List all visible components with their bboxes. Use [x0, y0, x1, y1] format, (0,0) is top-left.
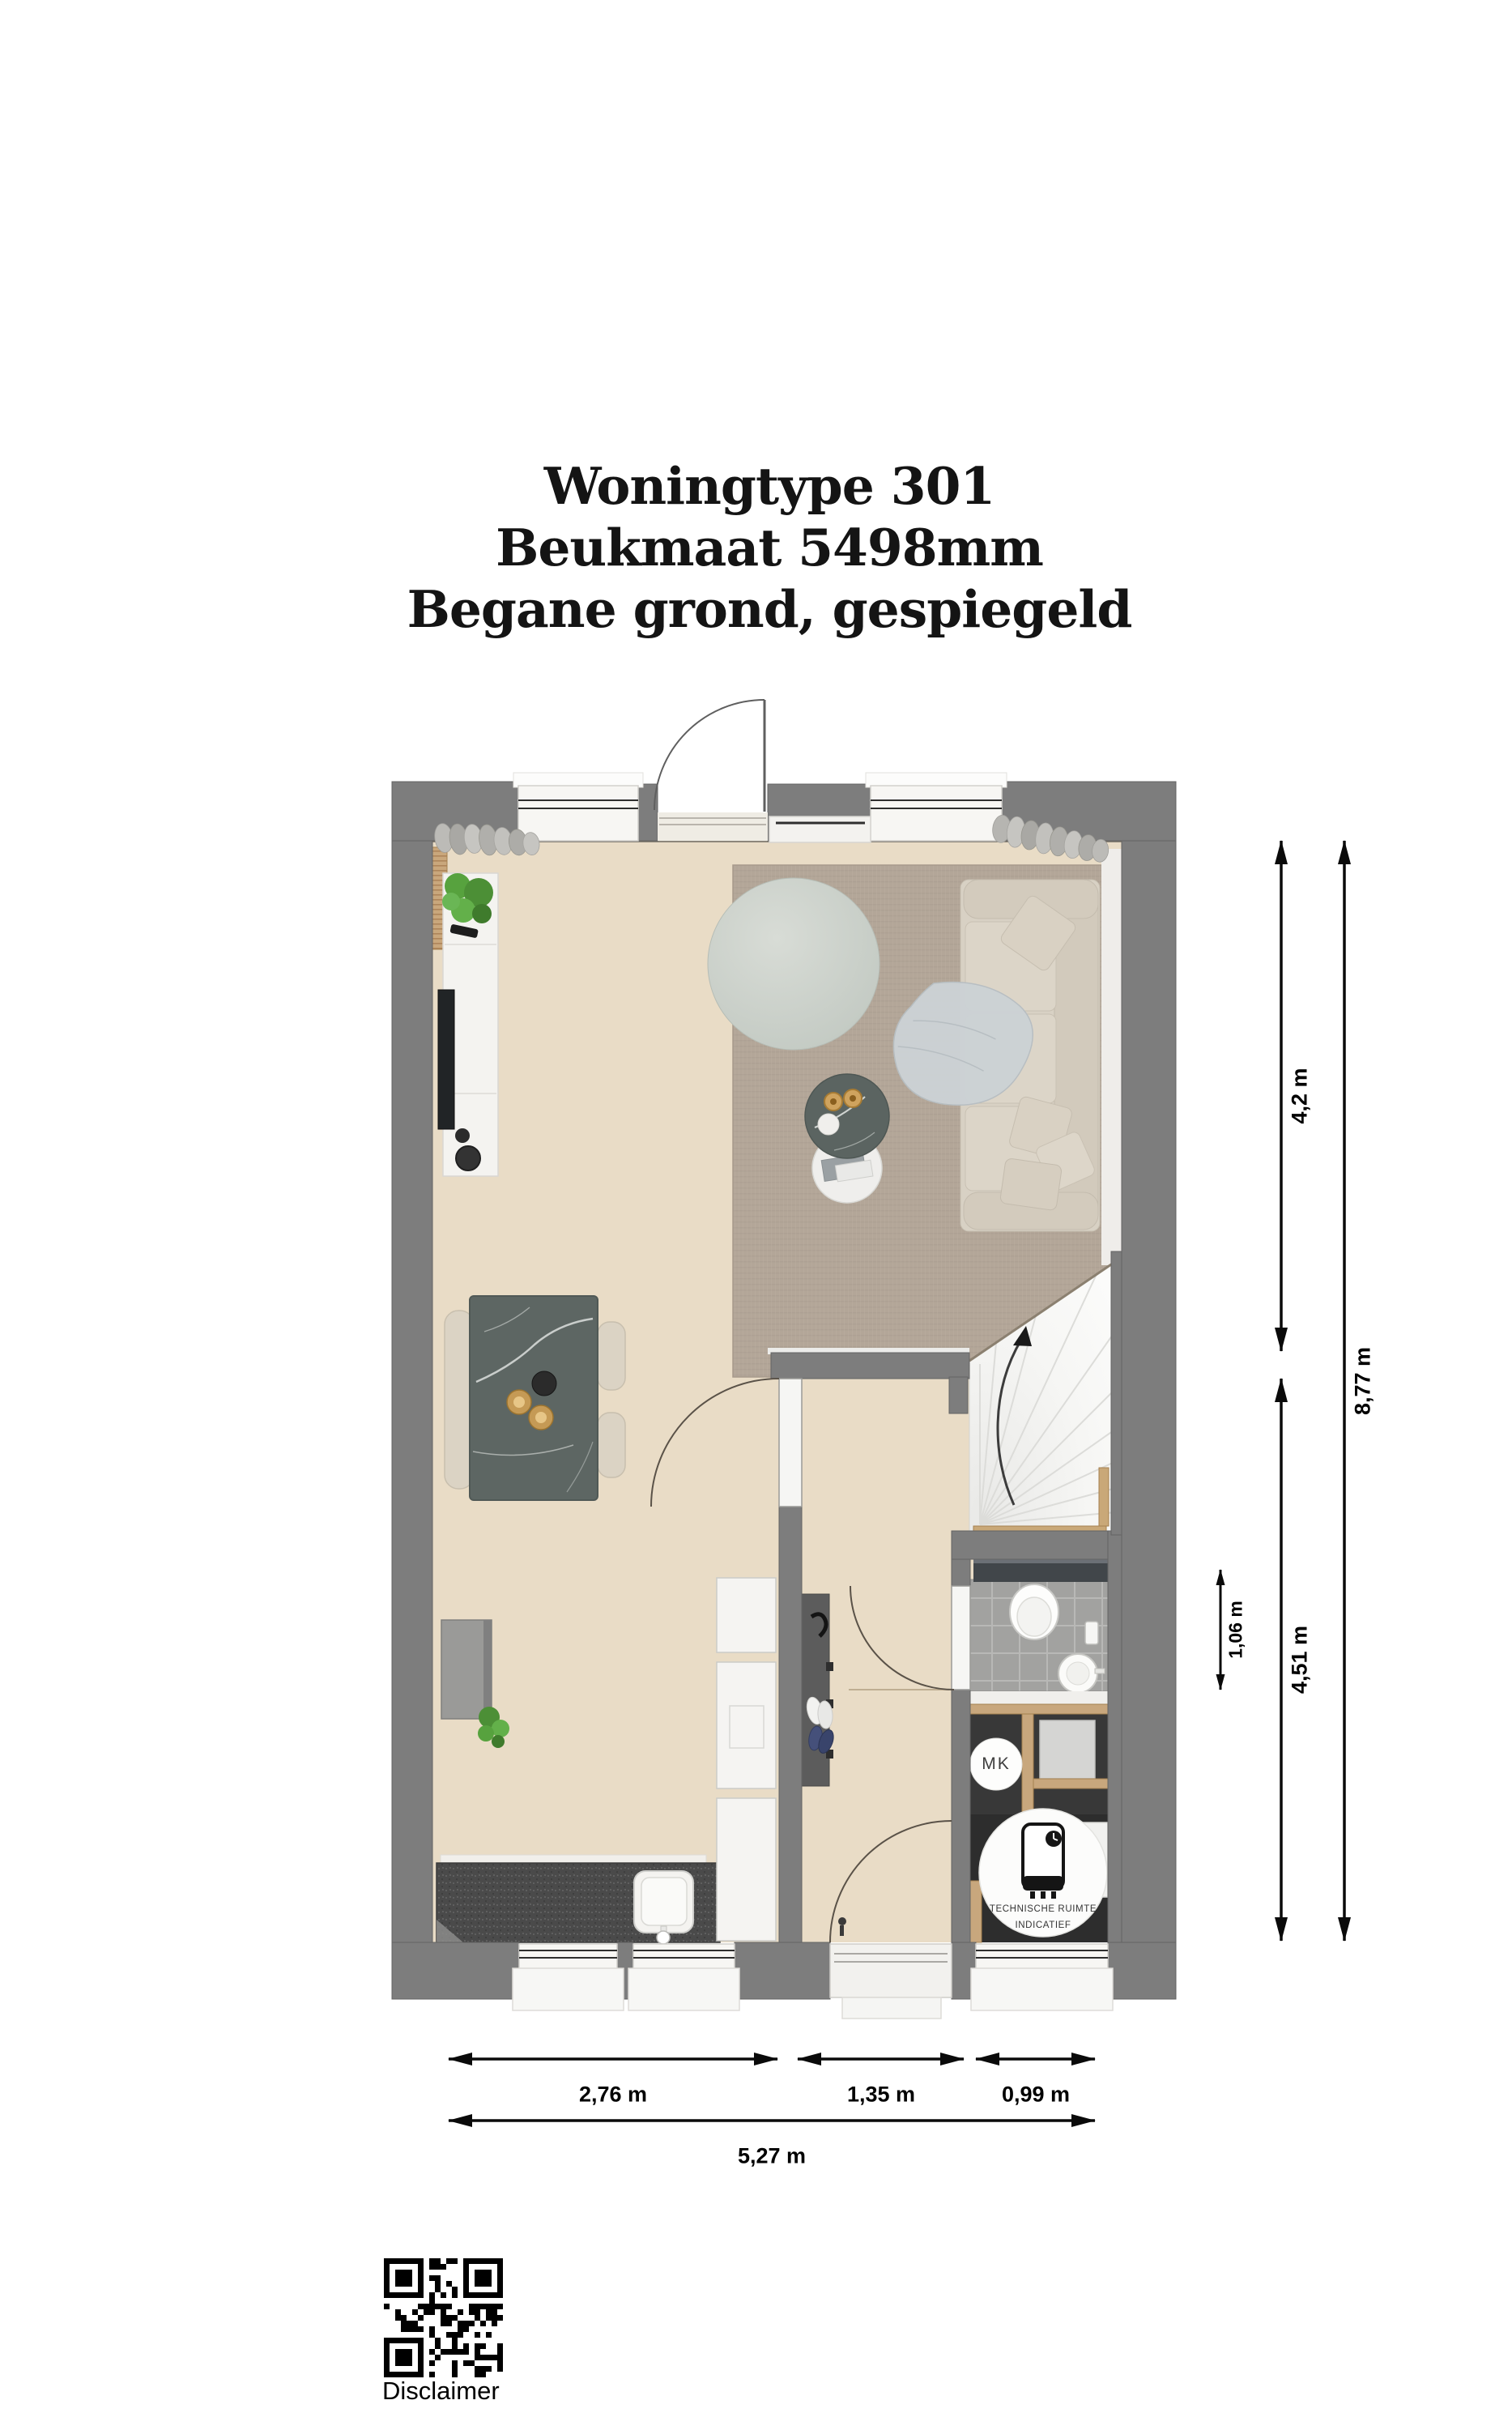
- window-top-right: [871, 786, 1002, 841]
- window-bottom-mid: [633, 1944, 735, 1968]
- dining-table: [470, 1296, 598, 1500]
- wall-toilet-left-lower: [952, 1690, 970, 1942]
- back-door-swing-arc: [654, 700, 765, 810]
- dim-label-living-depth: 4,2 m: [1288, 1068, 1313, 1123]
- tv-screen: [438, 990, 454, 1129]
- technical-room-label-2: INDICATIEF: [1015, 1921, 1071, 1930]
- wall-bottom-corner-right: [1108, 1942, 1176, 1999]
- wall-living-hall: [771, 1353, 969, 1379]
- dim-label-width-1: 2,76 m: [579, 2083, 647, 2108]
- floorplan-page: Woningtype 301 Beukmaat 5498mm Begane gr…: [0, 0, 1512, 2430]
- kitchen-tall-unit-3: [717, 1798, 776, 1941]
- meter-cupboard-label: MK: [982, 1754, 1011, 1774]
- low-cabinet-top: [769, 816, 871, 842]
- pouf: [708, 878, 880, 1050]
- wall-toilet-left-upper: [952, 1559, 970, 1586]
- floorplan-graphic: [0, 0, 1512, 2430]
- dim-label-width-2: 1,35 m: [847, 2083, 915, 2108]
- back-door-opening: [658, 812, 768, 841]
- toilet-door-leaf: [952, 1586, 970, 1690]
- wall-corner-post: [949, 1377, 968, 1413]
- technical-room-label-1: TECHNISCHE RUIMTE: [990, 1904, 1097, 1914]
- speaker-large: [456, 1146, 480, 1170]
- wall-stairs-toilet: [952, 1531, 1122, 1559]
- boiler-icon: [1023, 1824, 1063, 1899]
- disclaimer-label: Disclaimer: [382, 2377, 500, 2406]
- window-top-left: [518, 786, 638, 841]
- top-facade: [513, 700, 1007, 842]
- kitchen-tall-unit-1: [717, 1578, 776, 1652]
- wall-bottom-corner-left: [392, 1942, 519, 1999]
- dining-chair-1: [598, 1322, 625, 1390]
- wall-shaft-right: [1108, 1531, 1122, 1942]
- dim-label-toilet-depth: 1,06 m: [1225, 1601, 1247, 1659]
- flush-plate: [1085, 1622, 1098, 1644]
- wall-trim-behind-sofa: [1101, 849, 1122, 1265]
- bowl: [532, 1371, 556, 1396]
- front-door-handle: [838, 1917, 846, 1925]
- dim-label-rear-depth: 4,51 m: [1288, 1626, 1313, 1694]
- toilet-room: [970, 1559, 1108, 1704]
- mk-cabinet-box: [1040, 1720, 1095, 1779]
- dining-set: [445, 1296, 625, 1500]
- front-door-step: [842, 1997, 941, 2019]
- wall-stair-stringer: [1111, 1251, 1122, 1535]
- wall-hall-vertical: [779, 1507, 802, 1942]
- qr-code: [381, 2256, 506, 2381]
- window-bottom-right: [976, 1944, 1108, 1968]
- living-hall-door-leaf: [779, 1379, 802, 1507]
- speaker-small: [455, 1128, 470, 1143]
- dining-chair-2: [598, 1413, 625, 1477]
- front-door: [830, 1944, 952, 1997]
- dim-label-total-depth: 8,77 m: [1351, 1347, 1376, 1415]
- kitchen-tall-unit-2: [717, 1662, 776, 1788]
- dim-label-width-3: 0,99 m: [1002, 2083, 1070, 2108]
- coffee-table: [805, 1074, 889, 1203]
- toilet-threshold: [970, 1691, 1108, 1704]
- window-bottom-left: [519, 1944, 617, 1968]
- faucet: [657, 1931, 670, 1944]
- wall-left: [392, 782, 432, 1999]
- kitchen-sink: [634, 1871, 693, 1944]
- dim-label-width-total: 5,27 m: [738, 2144, 806, 2169]
- wall-right: [1122, 782, 1176, 1999]
